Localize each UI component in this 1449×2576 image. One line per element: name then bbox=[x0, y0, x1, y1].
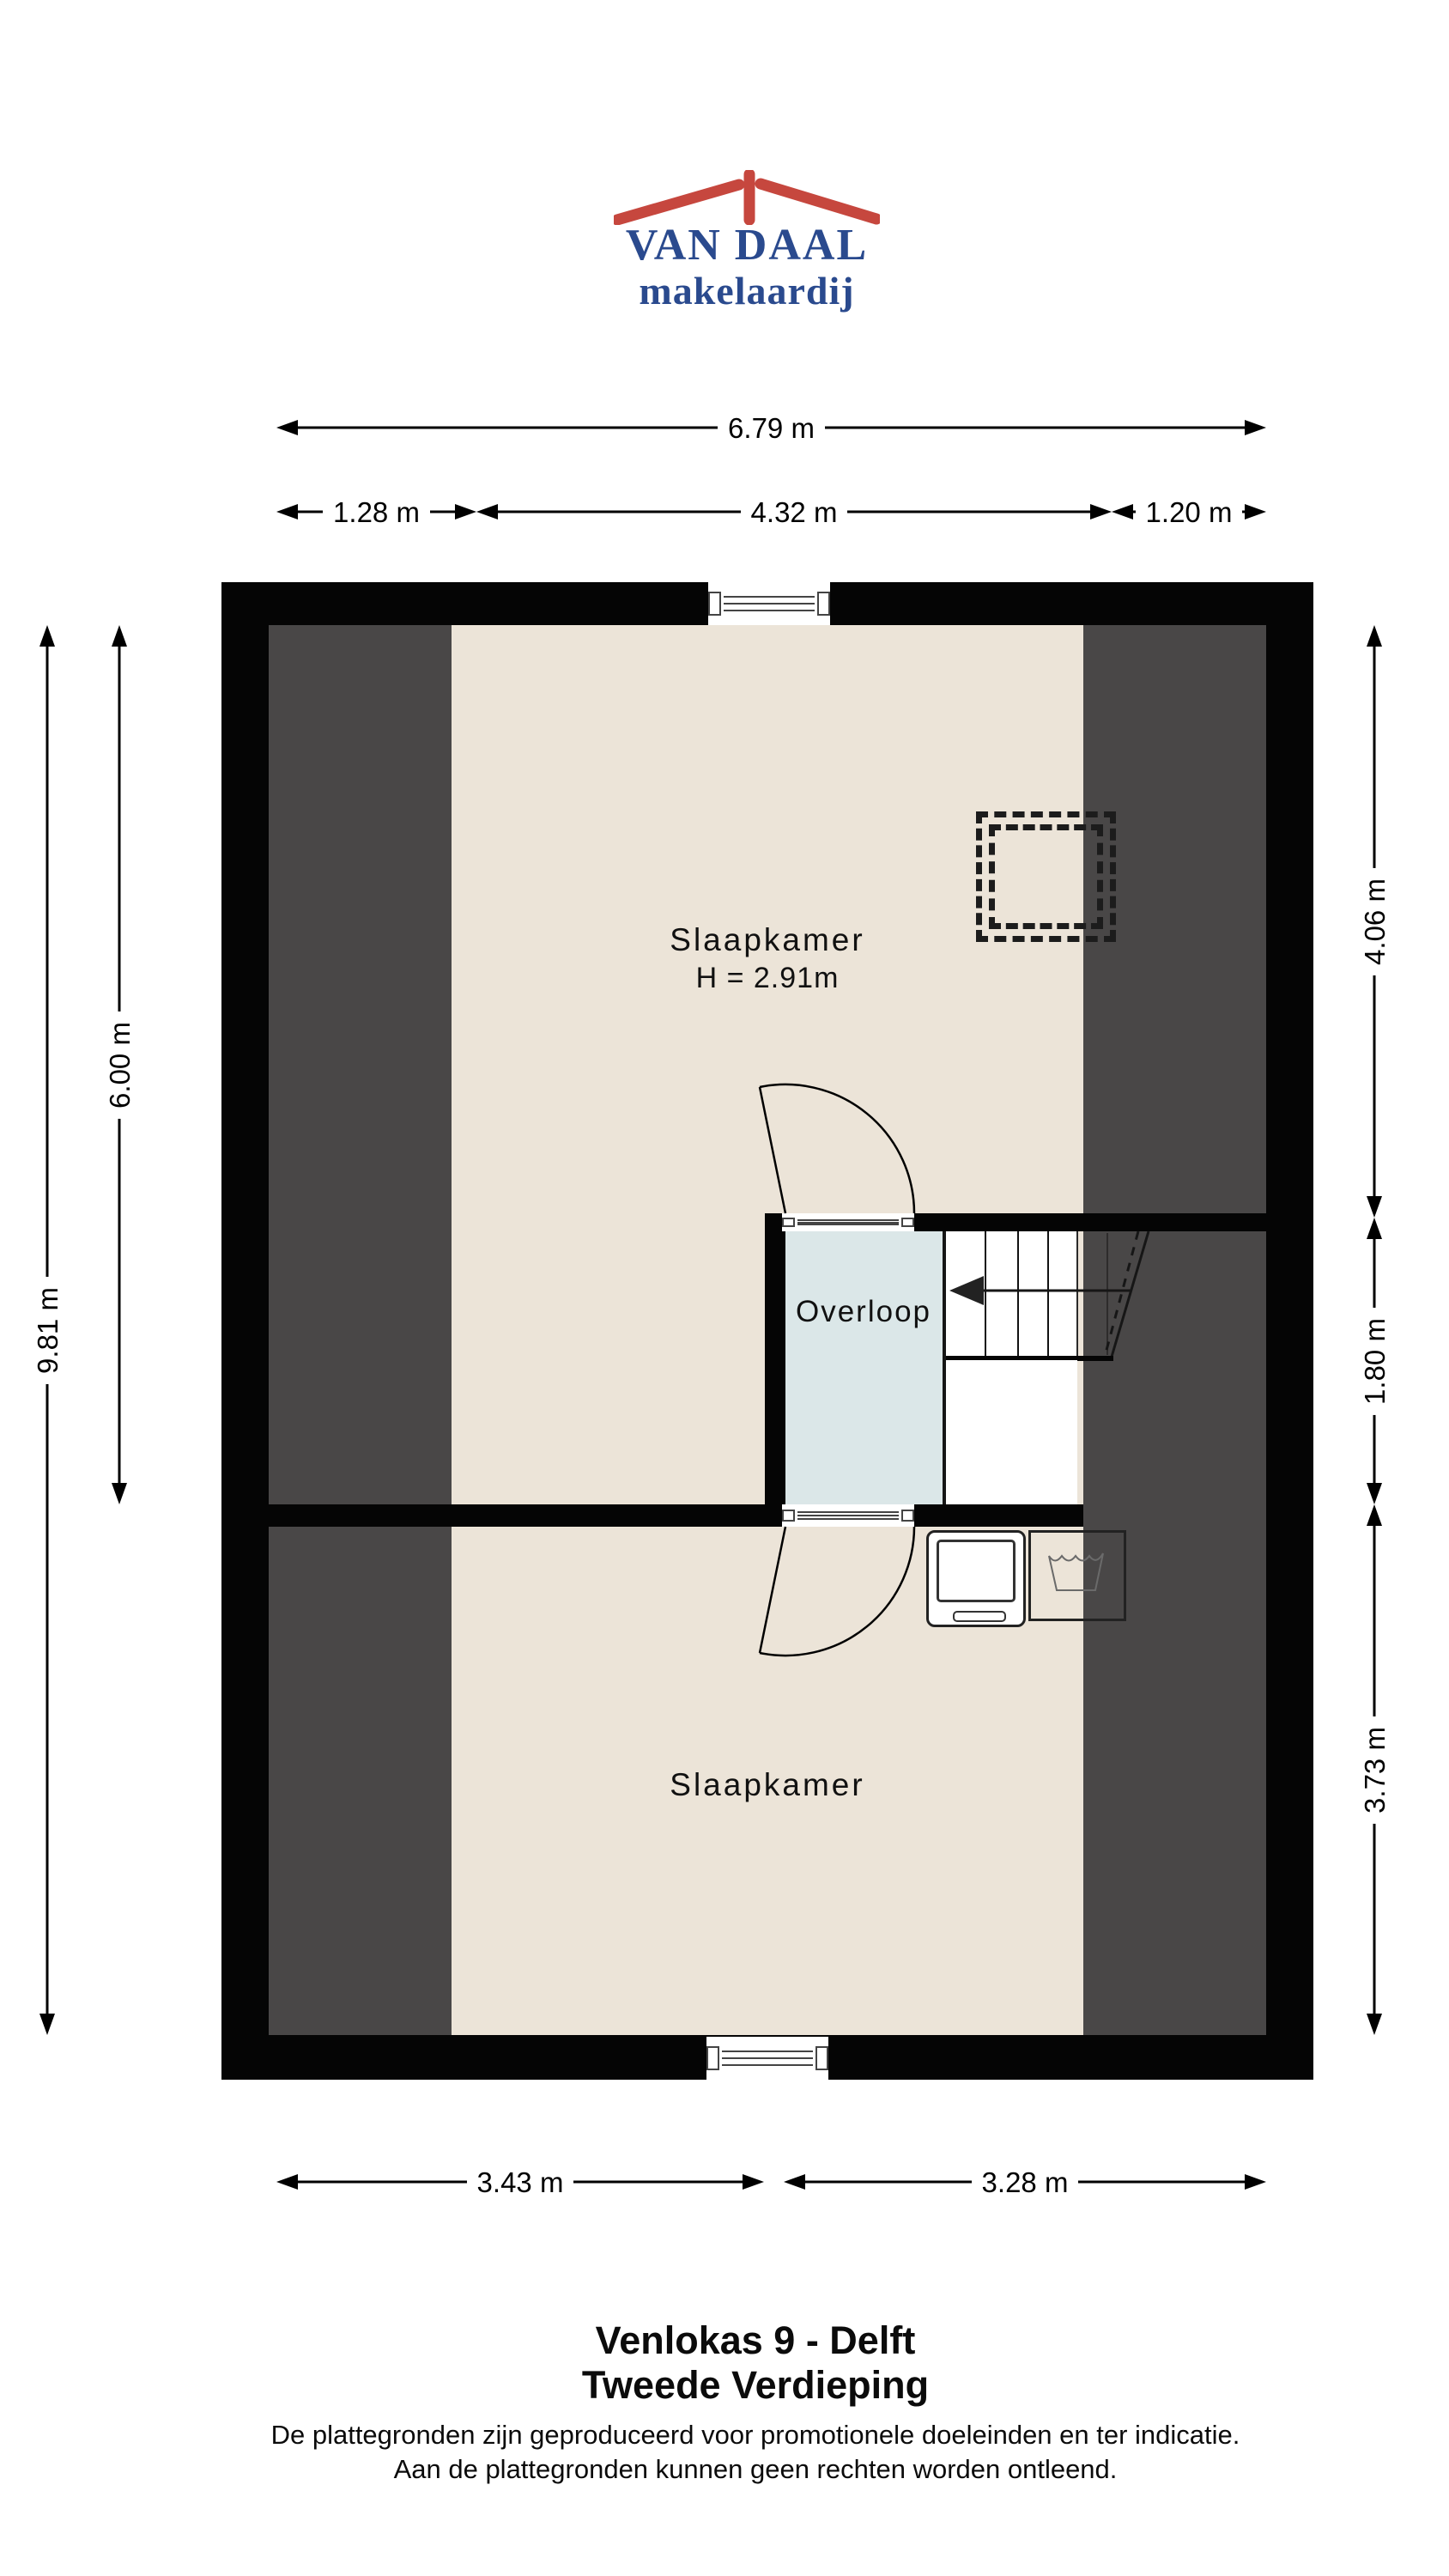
arrow-down-icon bbox=[1367, 1483, 1382, 1504]
dim-label: 6.79 m bbox=[718, 412, 825, 444]
floorplan-page: VAN DAAL makelaardij 6.79 m 1.28 m 4.32 … bbox=[0, 0, 1449, 2576]
dim-label: 6.00 m bbox=[104, 1012, 136, 1119]
door-bottom-swing bbox=[747, 1520, 927, 1666]
arrow-up-icon bbox=[1367, 625, 1382, 647]
dim-bottom-left: 3.43 m bbox=[276, 2166, 764, 2198]
middle-wall bbox=[914, 1504, 1083, 1527]
door-top-swing bbox=[747, 1078, 927, 1219]
arrow-right-icon bbox=[1245, 2174, 1266, 2190]
dim-left-upper: 6.00 m bbox=[103, 625, 136, 1504]
dim-top-total: 6.79 m bbox=[276, 411, 1266, 444]
arrow-right-icon bbox=[455, 504, 476, 519]
washing-machine-icon bbox=[926, 1530, 1026, 1627]
ceiling-height: H = 2.91m bbox=[510, 960, 1025, 997]
arrow-up-icon bbox=[1367, 1218, 1382, 1239]
dim-label: 3.28 m bbox=[972, 2166, 1079, 2198]
window-bottom bbox=[706, 2037, 828, 2080]
arrow-up-icon bbox=[39, 625, 55, 647]
disclaimer-line-2: Aan de plattegronden kunnen geen rechten… bbox=[62, 2454, 1449, 2485]
laundry-tub-glyph bbox=[1028, 1530, 1126, 1621]
room-label-bedroom-bottom: Slaapkamer bbox=[510, 1765, 1025, 1805]
arrow-down-icon bbox=[112, 1483, 127, 1504]
arrow-down-icon bbox=[1367, 2014, 1382, 2035]
stairs bbox=[943, 1231, 1157, 1362]
dim-label: 1.28 m bbox=[323, 496, 430, 528]
dim-top-center: 4.32 m bbox=[476, 495, 1112, 528]
dim-top-right: 1.20 m bbox=[1112, 495, 1266, 528]
dim-right-lower: 3.73 m bbox=[1358, 1504, 1391, 2035]
window-top bbox=[708, 582, 830, 625]
dim-top-left: 1.28 m bbox=[276, 495, 476, 528]
landing-top-wall bbox=[914, 1213, 1266, 1231]
arrow-left-icon bbox=[1112, 504, 1133, 519]
room-name: Slaapkamer bbox=[510, 1765, 1025, 1805]
room-name: Overloop bbox=[778, 1293, 949, 1331]
arrow-right-icon bbox=[1245, 504, 1266, 519]
arrow-left-icon bbox=[276, 504, 298, 519]
landing-left-wall bbox=[765, 1213, 785, 1527]
arrow-left-icon bbox=[476, 504, 498, 519]
arrow-left-icon bbox=[276, 420, 298, 435]
room-label-bedroom-top: Slaapkamer H = 2.91m bbox=[510, 920, 1025, 997]
dim-label: 1.20 m bbox=[1136, 496, 1243, 528]
address-title: Venlokas 9 - Delft bbox=[62, 2318, 1449, 2363]
arrow-left-icon bbox=[276, 2174, 298, 2190]
arrow-right-icon bbox=[1245, 420, 1266, 435]
dim-label: 1.80 m bbox=[1359, 1308, 1391, 1415]
arrow-right-icon bbox=[1090, 504, 1112, 519]
dim-label: 4.06 m bbox=[1359, 868, 1391, 975]
arrow-up-icon bbox=[112, 625, 127, 647]
room-label-landing: Overloop bbox=[778, 1293, 949, 1331]
arrow-right-icon bbox=[743, 2174, 764, 2190]
logo-tagline: makelaardij bbox=[510, 268, 984, 313]
room-name: Slaapkamer bbox=[510, 920, 1025, 960]
arrow-down-icon bbox=[1367, 1196, 1382, 1218]
middle-wall bbox=[269, 1504, 782, 1527]
dim-right-middle: 1.80 m bbox=[1358, 1218, 1391, 1504]
dim-label: 4.32 m bbox=[741, 496, 848, 528]
stairwell-void bbox=[946, 1360, 1077, 1504]
dim-right-upper: 4.06 m bbox=[1358, 625, 1391, 1218]
arrow-up-icon bbox=[1367, 1504, 1382, 1526]
dim-label: 9.81 m bbox=[32, 1277, 64, 1384]
landing-floor bbox=[785, 1231, 943, 1504]
dim-label: 3.73 m bbox=[1359, 1716, 1391, 1824]
arrow-left-icon bbox=[784, 2174, 805, 2190]
logo-name: VAN DAAL bbox=[510, 220, 984, 270]
dim-label: 3.43 m bbox=[467, 2166, 574, 2198]
disclaimer-line-1: De plattegronden zijn geproduceerd voor … bbox=[62, 2420, 1449, 2451]
logo-roof-icon bbox=[614, 170, 880, 225]
sloped-ceiling-zone-left bbox=[269, 625, 452, 2035]
floor-title: Tweede Verdieping bbox=[62, 2363, 1449, 2408]
dim-left-total: 9.81 m bbox=[31, 625, 64, 2035]
arrow-down-icon bbox=[39, 2014, 55, 2035]
dim-bottom-right: 3.28 m bbox=[784, 2166, 1266, 2198]
